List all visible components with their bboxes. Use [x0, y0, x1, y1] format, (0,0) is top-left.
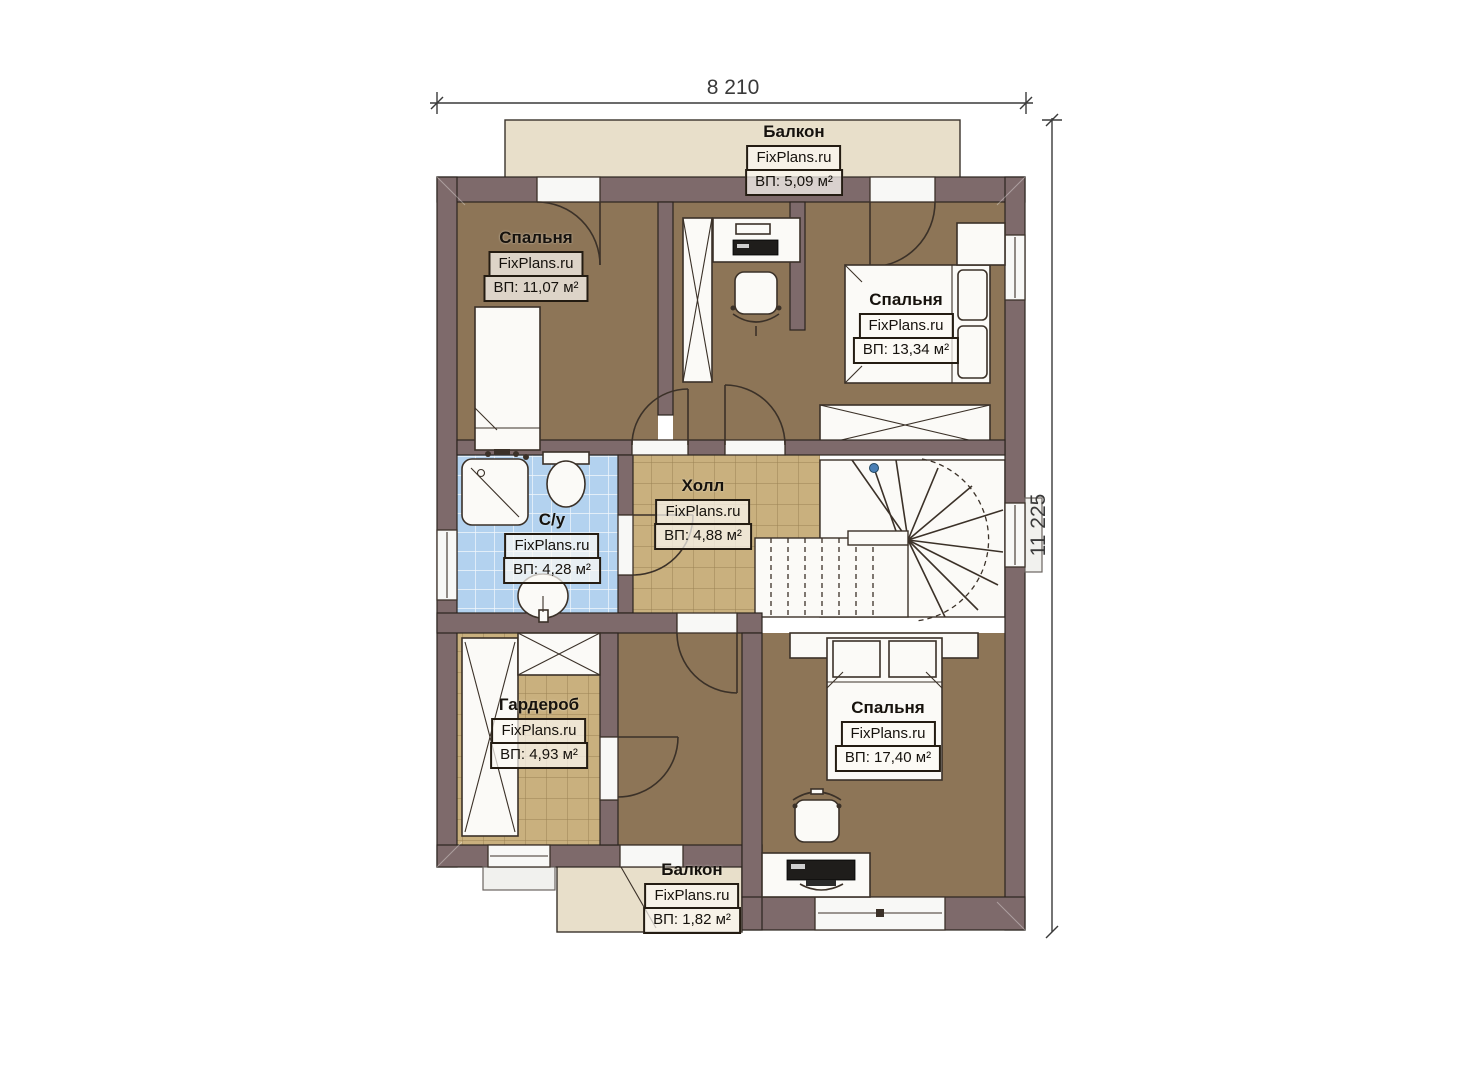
desk-bottom — [762, 853, 870, 897]
dimension-height: 11 225 — [1027, 494, 1050, 557]
dimension-width: 8 210 — [707, 76, 760, 99]
balcony-top-area — [505, 120, 960, 183]
bed-single — [475, 307, 540, 450]
closet-niche-tr — [957, 223, 1005, 265]
floor-plan-page: 8 210 11 225 Балкон FixPlans.ru ВП: 5,09… — [0, 0, 1473, 1080]
window-right-wall-top — [1005, 235, 1025, 300]
shower — [462, 449, 529, 525]
balcony-bottom-area — [557, 858, 742, 932]
wardrobe-column — [683, 218, 712, 382]
floor-plan-drawing: 8 210 11 225 — [0, 0, 1473, 1080]
window-left-wall — [437, 530, 457, 600]
door-balcony-bottom — [620, 845, 683, 867]
room-middle-floor — [618, 633, 742, 845]
bed-double-top — [845, 265, 990, 383]
stair-direction-dot — [870, 464, 879, 473]
window-bottom-left — [483, 845, 555, 890]
wardrobe-closet-top — [518, 633, 600, 675]
bed-double-bottom — [827, 638, 942, 780]
wardrobe-tall-left — [462, 638, 518, 836]
desk-top — [713, 218, 800, 262]
window-bottom-bedroom — [815, 897, 945, 930]
closet-by-stairs — [820, 405, 990, 445]
